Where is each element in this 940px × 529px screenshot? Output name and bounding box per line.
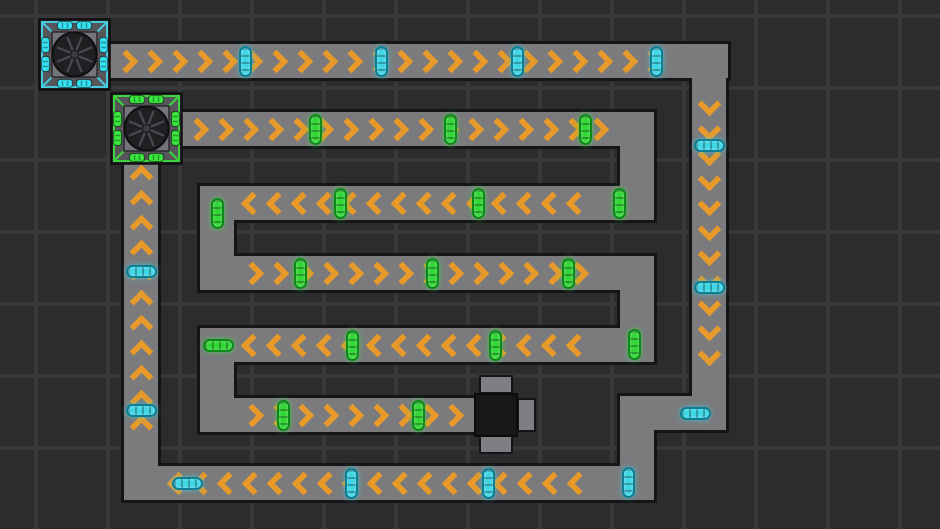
cyan-item	[239, 46, 252, 77]
green-item	[203, 339, 234, 352]
cyan-item	[694, 281, 725, 294]
green-item	[346, 330, 359, 361]
green-item	[562, 258, 575, 289]
green-item	[472, 188, 485, 219]
green-item	[211, 198, 224, 229]
delivery-port-0	[479, 375, 513, 394]
cyan-item	[482, 468, 495, 499]
green-item	[628, 329, 641, 360]
cyan-item	[126, 265, 157, 278]
machine-cyan-rotor-icon	[38, 18, 111, 91]
machine-green[interactable]	[110, 92, 183, 165]
cyan-item	[126, 404, 157, 417]
green-item	[294, 258, 307, 289]
green-item	[579, 114, 592, 145]
green-item	[613, 188, 626, 219]
game-stage[interactable]	[0, 0, 940, 529]
cyan-item	[345, 468, 358, 499]
cyan-item	[622, 467, 635, 498]
machine-cyan[interactable]	[38, 18, 111, 91]
green-item	[309, 114, 322, 145]
green-item	[277, 400, 290, 431]
delivery-target-building[interactable]	[474, 393, 518, 437]
cyan-item	[172, 477, 203, 490]
green-item	[412, 400, 425, 431]
green-item	[444, 114, 457, 145]
cyan-item	[650, 46, 663, 77]
machine-green-rotor-icon	[110, 92, 183, 165]
cyan-item	[680, 407, 711, 420]
cyan-item	[375, 46, 388, 77]
green-item	[426, 258, 439, 289]
green-item	[489, 330, 502, 361]
delivery-port-1	[479, 435, 513, 454]
delivery-port-2	[517, 398, 536, 432]
cyan-item	[511, 46, 524, 77]
cyan-item	[694, 139, 725, 152]
green-item	[334, 188, 347, 219]
